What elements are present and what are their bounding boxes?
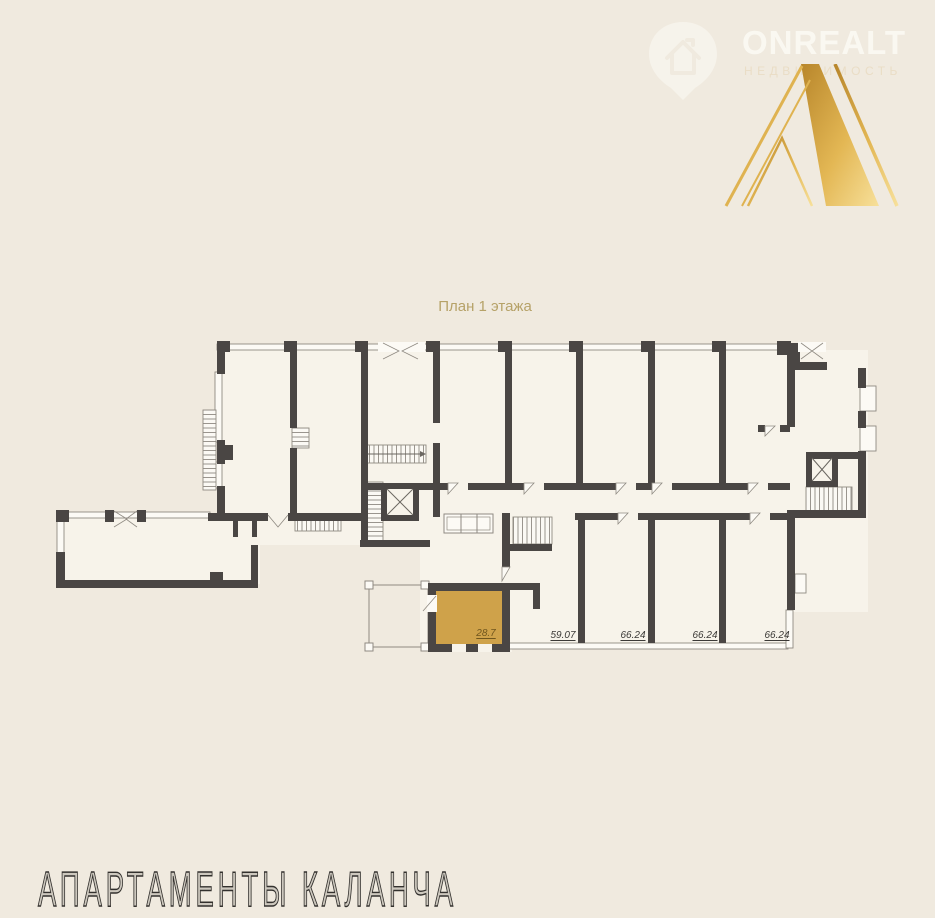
- room-area-label: 66.24: [684, 630, 726, 641]
- floor-plan: [0, 0, 935, 885]
- footer-title: АПАРТАМЕНТЫ КАЛАНЧА: [38, 862, 457, 918]
- room-area-label: 66.24: [756, 630, 798, 641]
- terrace: [369, 585, 428, 647]
- highlight-area-label: 28.7: [468, 628, 504, 639]
- room-area-label: 66.24: [612, 630, 654, 641]
- listing-image: ONREALT НЕДВИЖИМОСТЬ План 1 эт: [0, 0, 935, 885]
- room-area-label: 59.07: [542, 630, 584, 641]
